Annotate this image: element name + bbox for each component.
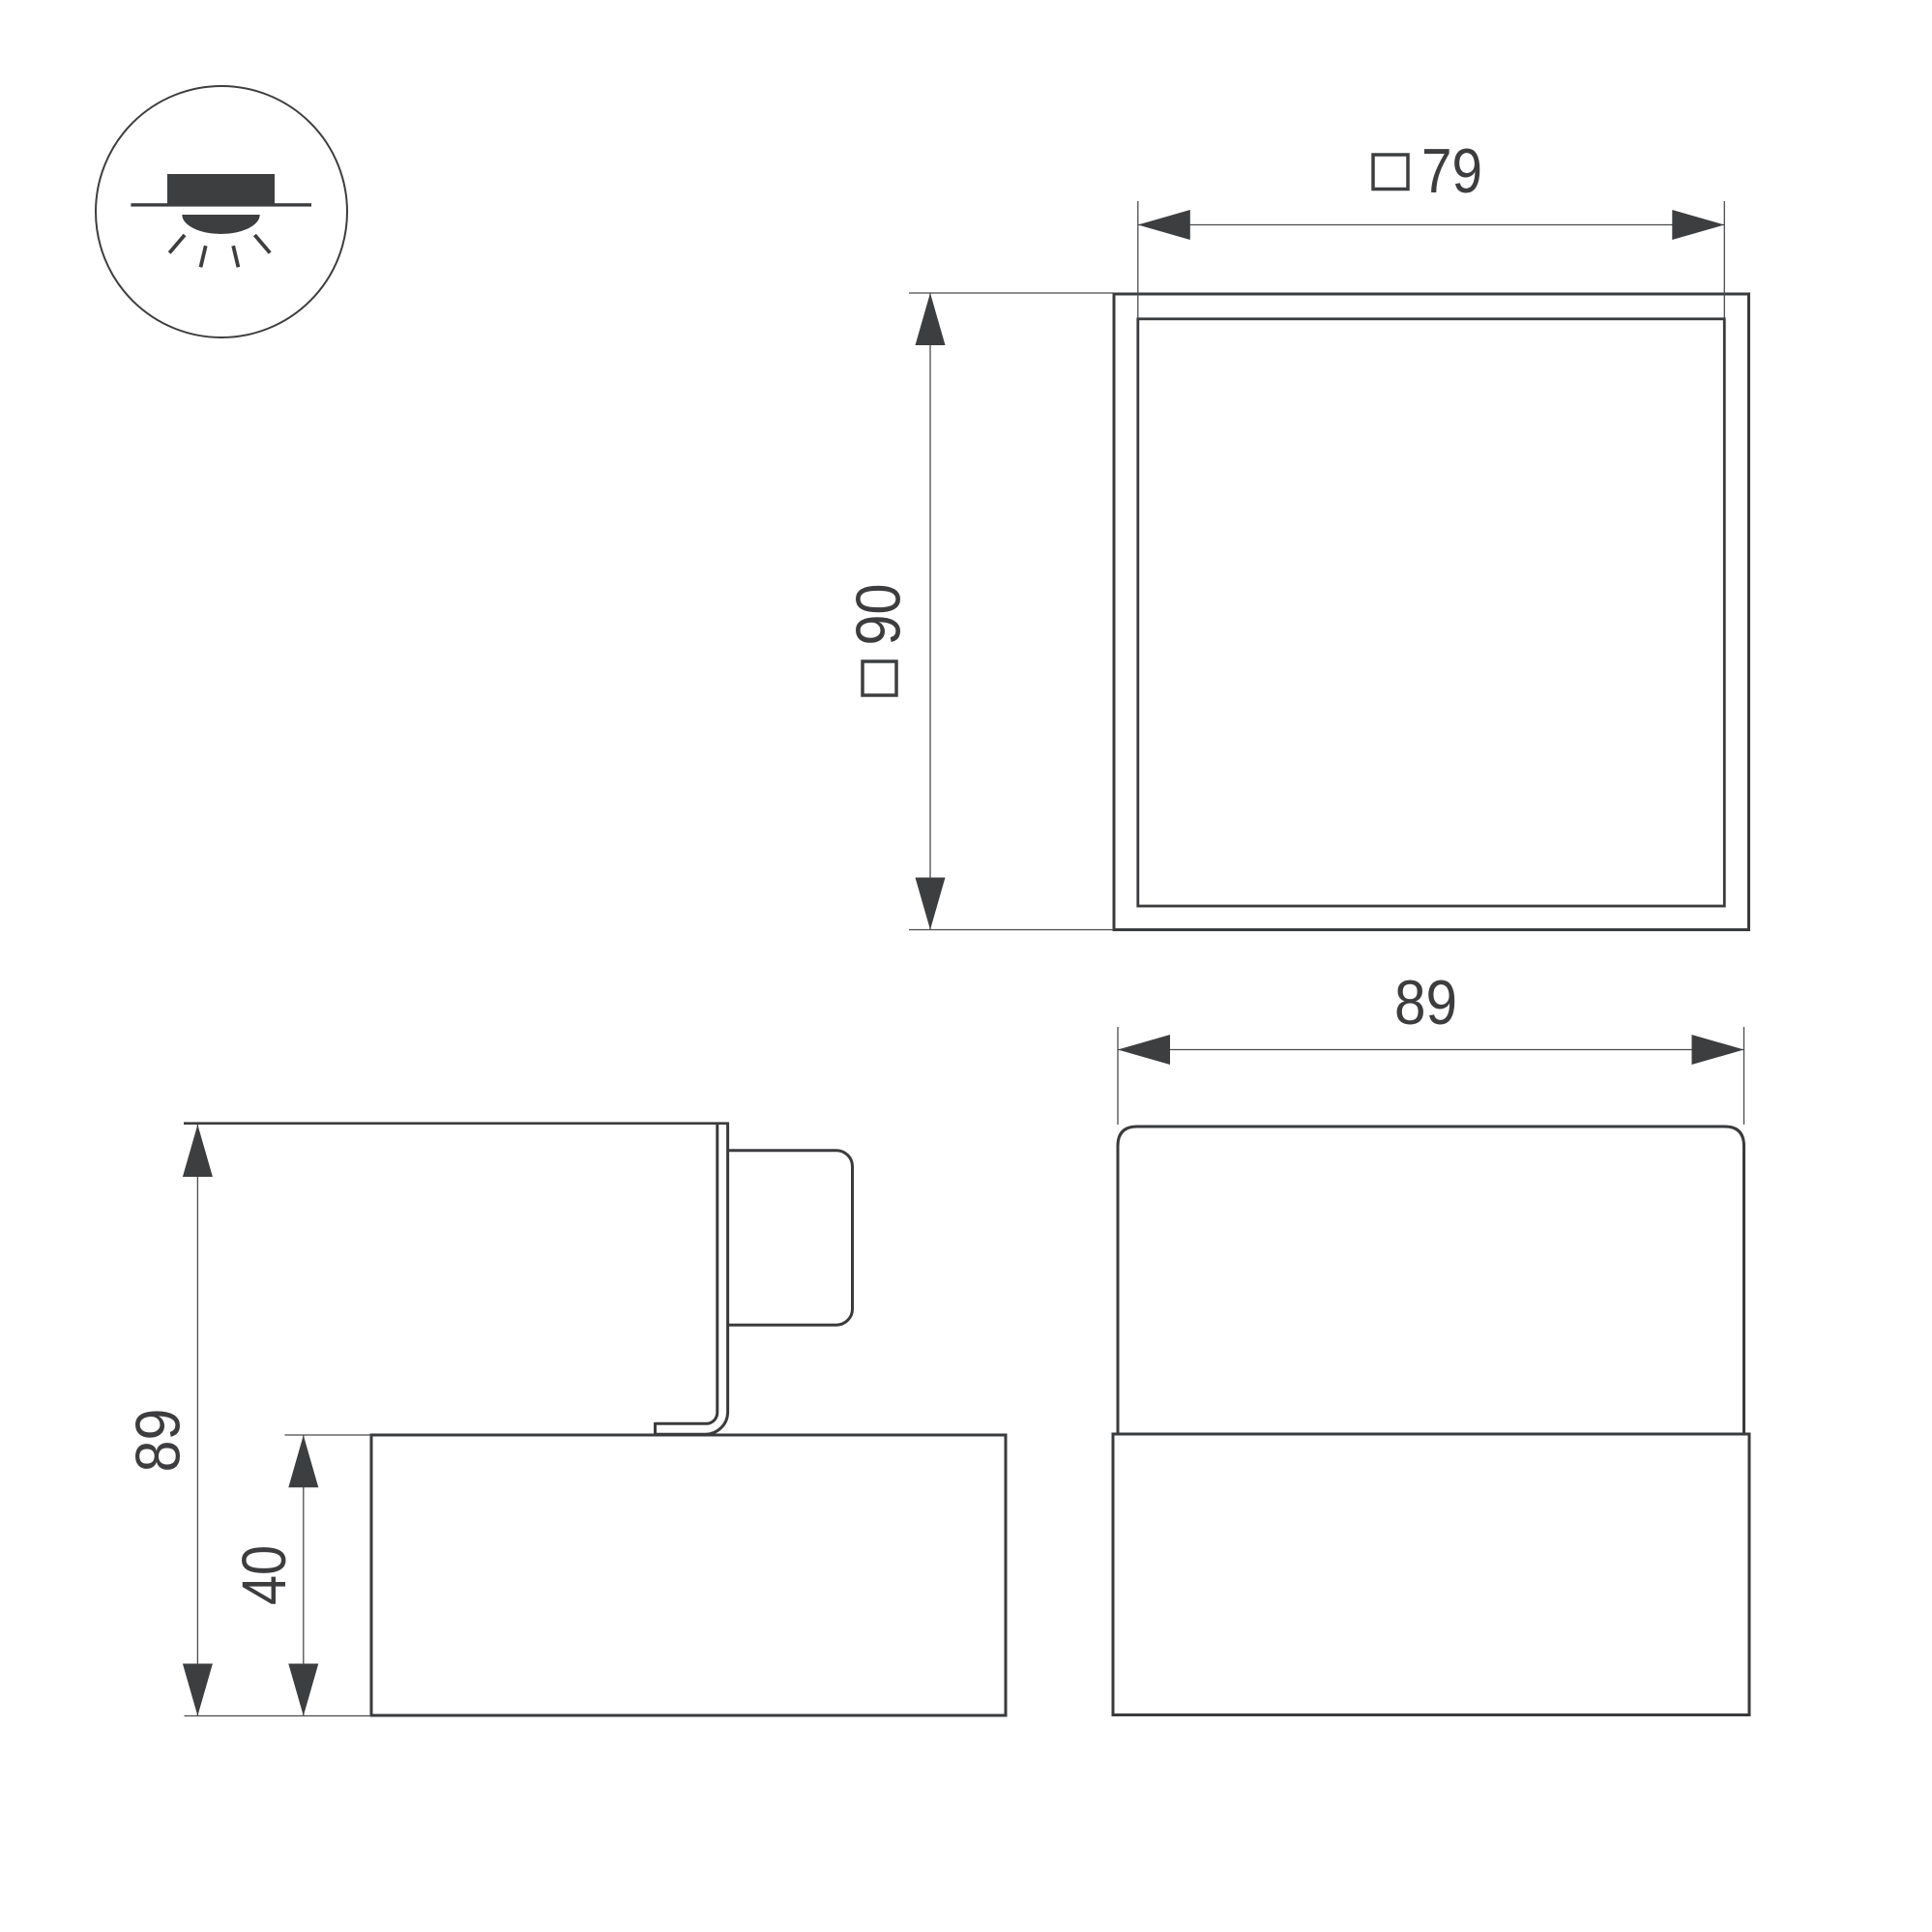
svg-text:40: 40: [229, 1545, 299, 1605]
svg-text:89: 89: [1394, 967, 1457, 1038]
svg-text:89: 89: [122, 1409, 192, 1473]
svg-text:79: 79: [1421, 135, 1482, 206]
svg-text:90: 90: [843, 584, 914, 646]
